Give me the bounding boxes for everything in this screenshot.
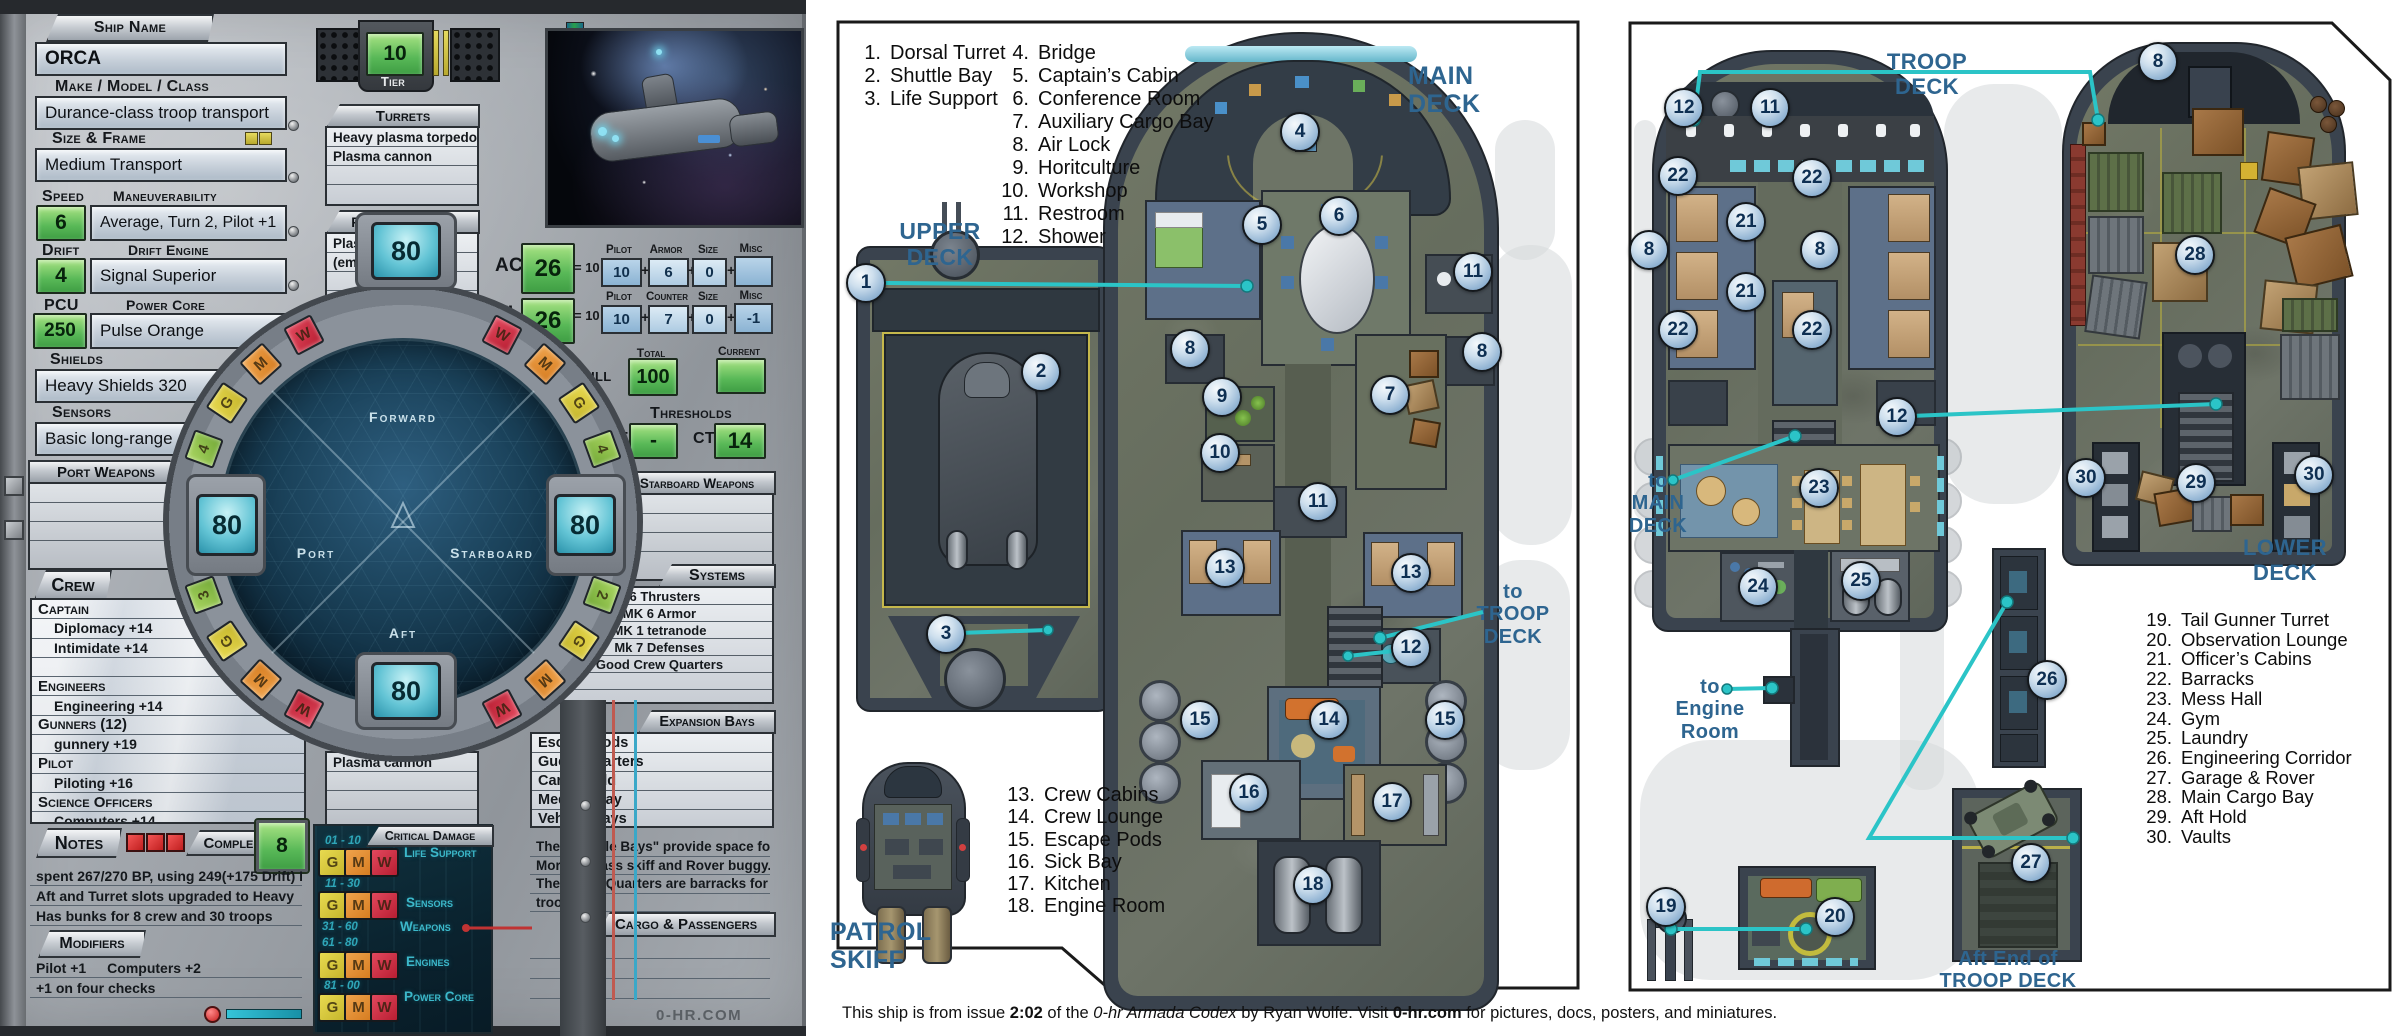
map-marker: 12	[1877, 397, 1917, 437]
map-marker: 30	[2066, 458, 2106, 498]
map-marker: 8	[1462, 332, 1502, 372]
map-marker: 16	[1229, 773, 1269, 813]
map-marker: 7	[1370, 375, 1410, 415]
map-marker: 3	[926, 614, 966, 654]
map-marker: 17	[1372, 782, 1412, 822]
map-marker: 5	[1242, 205, 1282, 245]
map-marker: 18	[1293, 865, 1333, 905]
map-marker: 8	[1170, 329, 1210, 369]
map-marker: 12	[1391, 628, 1431, 668]
map-marker: 22	[1658, 156, 1698, 196]
map-marker: 21	[1726, 202, 1766, 242]
map-marker: 19	[1646, 887, 1686, 927]
map-marker: 27	[2011, 843, 2051, 883]
map-marker: 12	[1664, 88, 1704, 128]
map-marker: 28	[2175, 235, 2215, 275]
map-marker: 23	[1799, 468, 1839, 508]
map-marker: 13	[1391, 553, 1431, 593]
map-marker: 8	[1629, 230, 1669, 270]
map-marker: 22	[1658, 310, 1698, 350]
map-marker: 1	[846, 263, 886, 303]
map-marker: 30	[2294, 455, 2334, 495]
map-marker: 21	[1726, 272, 1766, 312]
map-marker: 9	[1202, 377, 1242, 417]
map-marker: 2	[1021, 352, 1061, 392]
map-marker: 10	[1200, 433, 1240, 473]
map-marker: 8	[1800, 230, 1840, 270]
map-marker: 24	[1738, 567, 1778, 607]
map-marker: 22	[1792, 310, 1832, 350]
map-marker: 14	[1309, 700, 1349, 740]
map-marker: 11	[1298, 482, 1338, 522]
map-marker: 25	[1841, 561, 1881, 601]
map-marker: 15	[1425, 700, 1465, 740]
map-marker: 8	[2138, 42, 2178, 82]
map-marker: 15	[1180, 700, 1220, 740]
map-marker: 26	[2027, 660, 2067, 700]
map-marker: 11	[1750, 88, 1790, 128]
map-marker: 11	[1453, 252, 1493, 292]
map-marker: 20	[1815, 897, 1855, 937]
map-marker: 4	[1280, 112, 1320, 152]
map-marker: 29	[2176, 463, 2216, 503]
screenshot-root: Ship Name ORCA Make / Model / Class Dura…	[0, 0, 2400, 1036]
map-marker: 13	[1205, 548, 1245, 588]
caption-text: This ship is from issue 2:02 of the 0-hr…	[842, 1004, 1777, 1023]
map-marker: 6	[1319, 196, 1359, 236]
map-marker: 22	[1792, 158, 1832, 198]
